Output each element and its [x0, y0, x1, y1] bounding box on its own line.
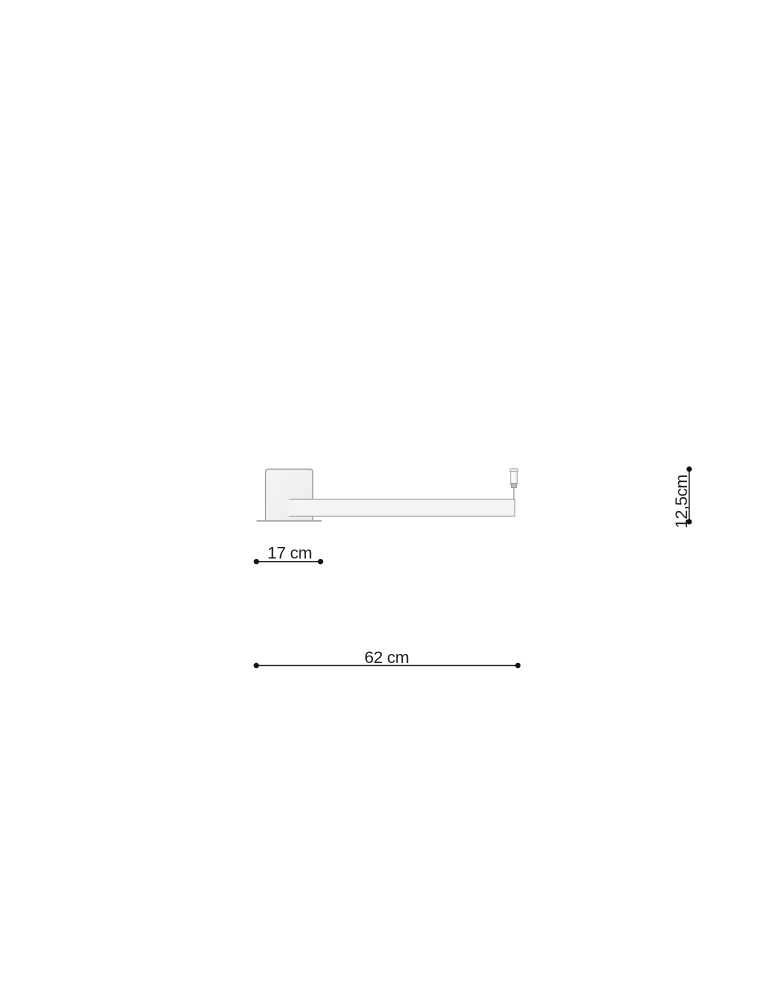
svg-text:12,5cm: 12,5cm — [672, 474, 691, 528]
svg-text:62 cm: 62 cm — [364, 648, 409, 667]
svg-text:17 cm: 17 cm — [267, 543, 312, 562]
